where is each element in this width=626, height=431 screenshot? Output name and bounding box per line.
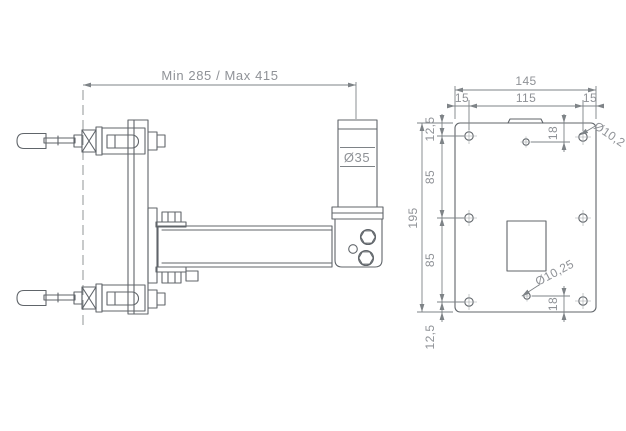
dim-left-margin: 15 — [455, 91, 469, 105]
front-view: 145 15 115 15 195 12,5 85 8 — [406, 74, 626, 349]
dim-hole-columns-group: 15 115 15 — [447, 91, 603, 106]
telescopic-arm — [158, 226, 332, 267]
wall-anchor-top — [17, 127, 145, 155]
bracket-drawing-svg: Ø35 Min 285 / Max 415 — [0, 0, 626, 431]
dim-center-hole-bottom: 18 — [546, 297, 560, 311]
plate-top-tab — [508, 119, 543, 123]
dim-hole-dia-bottom: Ø10,25 — [533, 257, 576, 289]
clamp-hex-bolts — [349, 230, 376, 266]
dim-right-margin: 15 — [583, 91, 597, 105]
dim-overall-width-group: 145 — [455, 74, 596, 90]
dim-row-spacing-lower: 85 — [423, 253, 437, 267]
technical-drawing-page: Ø35 Min 285 / Max 415 — [0, 0, 626, 431]
dim-overall-height-group: 195 — [406, 123, 422, 312]
dim-bottom-margin: 12,5 — [423, 325, 437, 350]
dim-row-spacing-upper: 85 — [423, 170, 437, 184]
wall-anchor-bottom — [17, 284, 145, 312]
dim-overall-height: 195 — [406, 207, 420, 228]
dim-top-margin: 12,5 — [423, 117, 437, 142]
pole-diameter-label: Ø35 — [344, 150, 370, 165]
dim-center-hole-top-group: 18 — [531, 114, 570, 152]
dim-hole-spacing-h: 115 — [516, 91, 536, 105]
telescopic-arm-inner-lines — [162, 230, 332, 263]
arm-bolt-bottom — [156, 267, 198, 283]
dim-range-label: Min 285 / Max 415 — [161, 68, 278, 83]
dim-center-hole-top: 18 — [546, 126, 560, 140]
arm-bolt-top — [156, 212, 186, 227]
dim-overall-width: 145 — [515, 74, 536, 88]
dim-extension-lines — [417, 86, 596, 312]
dim-hole-dia-bottom-group: Ø10,25 — [522, 257, 576, 296]
plate-holes — [461, 128, 591, 310]
dim-range: Min 285 / Max 415 — [83, 68, 356, 119]
side-view: Ø35 Min 285 / Max 415 — [17, 68, 383, 328]
clamp-small-hole — [349, 245, 358, 254]
dim-hole-rows-group: 12,5 85 85 12,5 — [423, 114, 442, 349]
dim-center-hole-bottom-group: 18 — [532, 286, 570, 322]
square-cutout — [507, 221, 546, 271]
mounting-plate — [455, 123, 596, 312]
